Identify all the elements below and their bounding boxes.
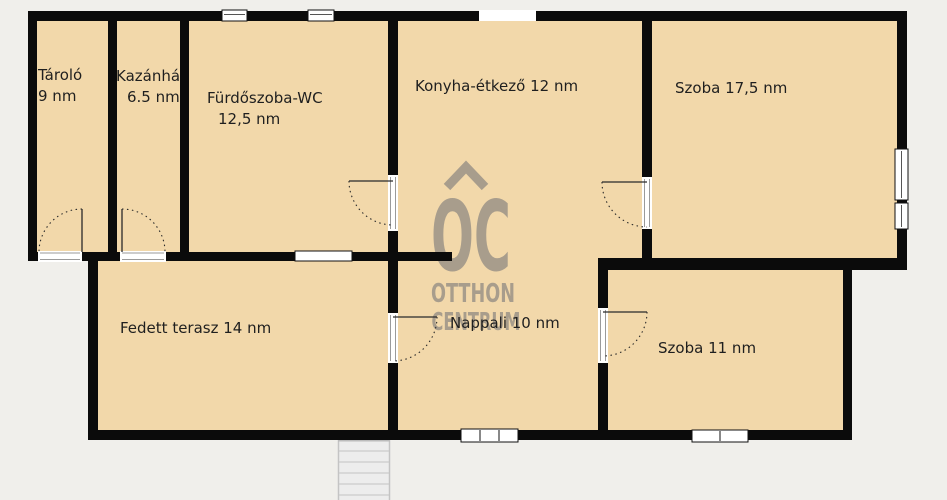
door-opening-nappali: [388, 313, 398, 363]
door-opening-furdoszoba: [388, 175, 398, 231]
room-name: Szoba: [658, 339, 703, 357]
room-name: Szoba: [675, 79, 720, 97]
wall-mid-right-horizontal: [598, 258, 907, 270]
watermark-logo-text: OC: [431, 180, 511, 293]
room-area: 17,5 nm: [725, 79, 787, 97]
room-label-konyha-etkezo: Konyha-étkező 12 nm: [415, 76, 578, 97]
room-area: 12 nm: [530, 77, 578, 95]
room-label-tarolo: Tároló 9 nm: [38, 65, 82, 107]
room-area: 14 nm: [223, 319, 271, 337]
door-opening-szoba-kis: [598, 308, 608, 363]
wall-left-exterior: [28, 11, 37, 261]
wall-right-exterior: [897, 11, 907, 270]
room-name: Fedett terasz: [120, 319, 218, 337]
window-furdoszoba-terasz: [295, 251, 352, 261]
wall-top-exterior: [28, 11, 907, 21]
room-area: 6.5 nm: [127, 87, 180, 108]
opening-top-wide: [479, 10, 536, 21]
room-name: Nappali: [450, 314, 507, 332]
wall-tarolo-kazanhaz: [108, 11, 117, 261]
wall-kazanhaz-furdoszoba: [180, 11, 189, 261]
room-name: Konyha-étkező: [415, 77, 525, 95]
room-label-szoba-kis: Szoba 11 nm: [658, 338, 756, 359]
wall-konyha-szoba: [642, 11, 652, 270]
wall-terasz-left: [88, 252, 98, 440]
window-top-1: [222, 10, 247, 21]
room-name: Fürdőszoba-WC: [207, 88, 323, 109]
stairs: [338, 440, 390, 500]
watermark-line1-text: OTTHON: [431, 279, 515, 309]
room-area: 11 nm: [708, 339, 756, 357]
floor-plan: OC OTTHON CENTRUM: [0, 0, 947, 500]
room-name: Kazánház: [116, 66, 180, 87]
stairs-body: [338, 440, 390, 500]
room-area: 12,5 nm: [218, 109, 323, 130]
wall-szoba11-right: [843, 258, 852, 440]
watermark: OC OTTHON CENTRUM: [431, 167, 521, 336]
room-label-furdoszoba-wc: Fürdőszoba-WC 12,5 nm: [207, 88, 323, 130]
room-area: 9 nm: [38, 86, 82, 107]
room-label-nappali: Nappali 10 nm: [450, 313, 560, 334]
window-top-2: [308, 10, 334, 21]
room-label-kazanhaz: Kazánház 6.5 nm: [116, 66, 180, 108]
window-nappali-bottom: [461, 429, 518, 442]
room-name: Tároló: [38, 65, 82, 86]
room-label-szoba-nagy: Szoba 17,5 nm: [675, 78, 787, 99]
room-area: 10 nm: [512, 314, 560, 332]
room-label-fedett-terasz: Fedett terasz 14 nm: [120, 318, 271, 339]
door-opening-szoba-nagy: [642, 177, 652, 229]
